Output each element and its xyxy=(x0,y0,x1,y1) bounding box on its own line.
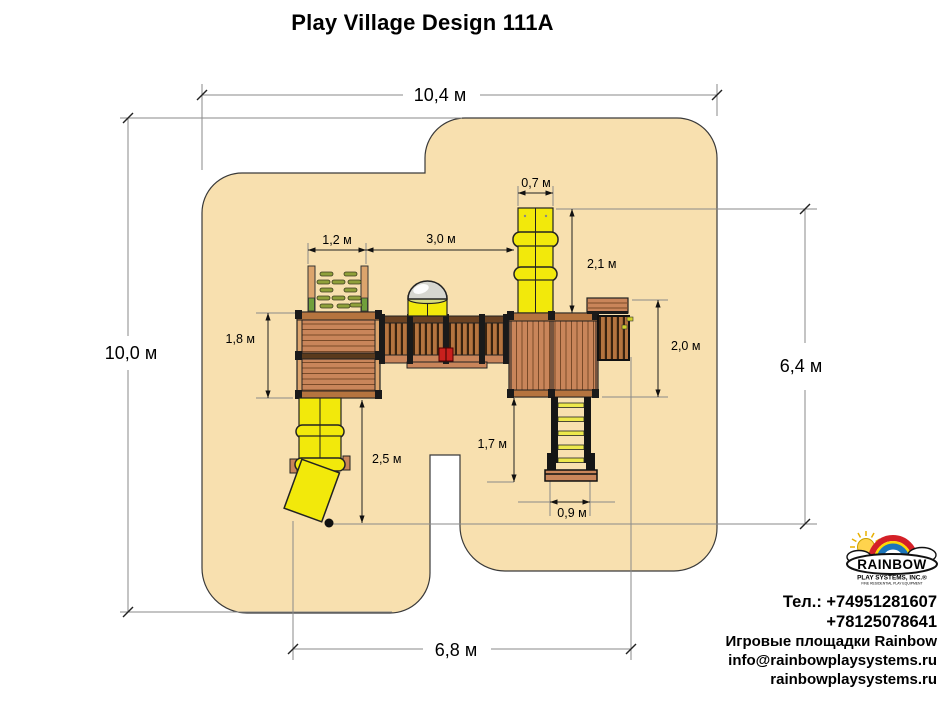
dim-label-ladder-width: 0,9 м xyxy=(557,506,586,520)
dim-label-tube-length: 2,1 м xyxy=(587,257,616,271)
contact-phone-1: Тел.: +74951281607 xyxy=(725,592,937,612)
dim-towers-span: 6,8 м xyxy=(288,640,636,660)
dim-label-right-tower-length: 2,0 м xyxy=(671,339,700,353)
dim-total-width: 10,4 м xyxy=(197,85,722,105)
left-tower xyxy=(295,310,382,399)
balcony-hold xyxy=(622,325,627,329)
right-tower xyxy=(507,311,599,398)
contact-company: Игровые площадки Rainbow xyxy=(725,632,937,651)
dim-label-tube-width: 0,7 м xyxy=(521,176,550,190)
balcony-hold xyxy=(627,317,633,321)
logo-subtitle: PLAY SYSTEMS, INC.® xyxy=(857,574,927,582)
binoculars xyxy=(439,348,453,361)
playground-plan-page: Play Village Design 111A xyxy=(0,0,945,706)
contact-block: Тел.: +74951281607 +78125078641 Игровые … xyxy=(725,592,937,689)
dim-label-spiral-slide-length: 2,5 м xyxy=(372,452,401,466)
contact-email: info@rainbowplaysystems.ru xyxy=(725,651,937,670)
slide-exit-point xyxy=(325,519,334,528)
dim-label-bridge-span: 3,0 м xyxy=(426,232,455,246)
dim-total-depth: 10,0 м xyxy=(105,113,157,617)
logo-tagline: FINE RESIDENTIAL PLAY EQUIPMENT xyxy=(861,582,922,586)
dim-label-ladder-length: 1,7 м xyxy=(478,437,507,451)
dome-bubble xyxy=(408,281,447,316)
logo-brand: RAINBOW xyxy=(857,557,927,572)
dim-label-towers-span: 6,8 м xyxy=(435,640,477,660)
contact-website: rainbowplaysystems.ru xyxy=(725,670,937,689)
dim-label-left-tower-length: 1,8 м xyxy=(226,332,255,346)
tube-slide xyxy=(513,208,558,313)
dim-right-depth: 6,4 м xyxy=(780,204,822,529)
rainbow-logo: RAINBOW PLAY SYSTEMS, INC.® FINE RESIDEN… xyxy=(847,531,937,586)
dim-label-right-depth: 6,4 м xyxy=(780,356,822,376)
contact-phone-2: +78125078641 xyxy=(725,612,937,632)
dim-label-rock-wall-width: 1,2 м xyxy=(322,233,351,247)
bridge xyxy=(379,314,509,368)
dim-label-total-depth: 10,0 м xyxy=(105,343,157,363)
dim-label-total-width: 10,4 м xyxy=(414,85,466,105)
